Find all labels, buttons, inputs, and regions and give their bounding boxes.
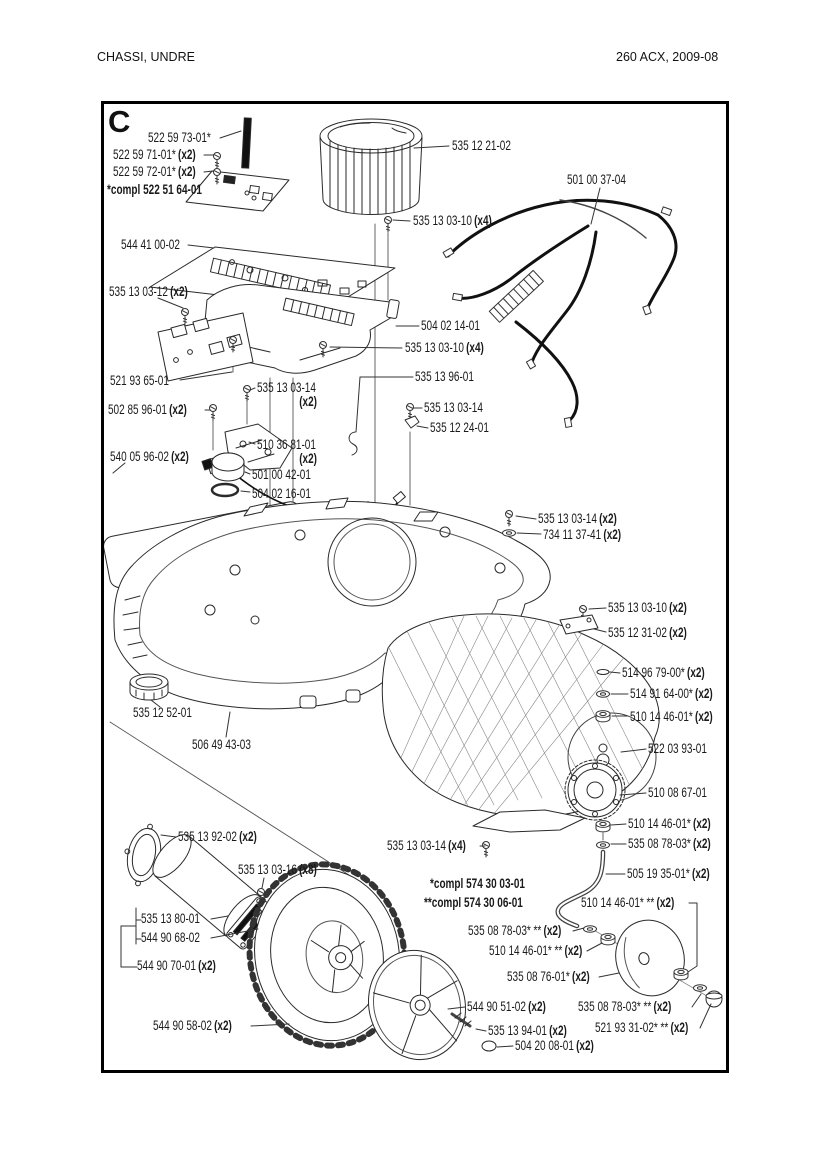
part-callout: 535 13 03-14 [424,401,485,415]
part-callout: 535 08 76-01*(x2) [507,970,590,984]
cable-harness-drawing [443,200,676,427]
part-callout: 501 00 37-04 [567,173,628,187]
part-callout: (x2) [297,452,317,466]
part-callout: 510 14 46-01* **(x2) [489,944,582,958]
part-callout: 535 13 80-01 [141,912,202,926]
part-callout: 510 08 67-01 [648,786,709,800]
part-callout: 522 59 71-01*(x2) [113,148,196,162]
part-callout: 535 13 03-16(x8) [238,863,317,877]
part-callout: 505 19 35-01*(x2) [627,867,710,881]
part-callout: 544 41 00-02 [121,238,182,252]
part-callout: 535 13 96-01 [415,370,476,384]
wheel-motor-unit-drawing [565,760,625,820]
part-callout: 544 90 68-02 [141,931,202,945]
part-callout: 502 85 96-01(x2) [108,403,187,417]
part-callout: 535 13 03-10(x4) [413,214,492,228]
compl-note: *compl 522 51 64-01 [107,183,202,197]
compl-note: **compl 574 30 06-01 [424,896,523,910]
part-callout: 544 90 51-02(x2) [467,1000,546,1014]
caster-wheel-drawing [607,912,692,1003]
part-callout: 535 13 03-14 [257,381,318,395]
part-callout: 510 14 46-01* **(x2) [581,896,674,910]
part-callout: 535 13 03-14(x2) [538,512,617,526]
part-callout: 535 12 21-02 [452,139,513,153]
part-callout: 504 02 14-01 [421,319,482,333]
part-callout: 734 11 37-41(x2) [543,528,621,542]
caster-axle-drawing [558,852,603,926]
model-revision: 260 ACX, 2009-08 [616,50,718,64]
parts-catalog-page: { "colors": {"ink": "#1a1a1a", "backgrou… [0,0,826,1169]
part-callout: 535 13 03-12(x2) [109,285,188,299]
part-callout: 544 90 70-01(x2) [137,959,216,973]
page-title: CHASSI, UNDRE [97,50,195,64]
part-callout: 535 08 78-03* **(x2) [578,1000,671,1014]
part-callout: 540 05 96-02(x2) [110,450,189,464]
part-callout: 535 12 52-01 [133,706,194,720]
part-callout: 535 13 03-10(x4) [405,341,484,355]
part-callout: 514 91 64-00*(x2) [630,687,713,701]
sensor-pcb-drawing [158,313,253,381]
part-callout: 522 59 73-01* [148,131,213,145]
compl-note: *compl 574 30 03-01 [430,877,525,891]
part-callout: 535 13 03-10(x2) [608,601,687,615]
part-callout: 522 59 72-01*(x2) [113,165,196,179]
part-callout: 521 93 65-01 [110,374,171,388]
part-callout: 535 12 24-01 [430,421,491,435]
part-callout: (x2) [297,395,317,409]
part-callout: 522 03 93-01 [648,742,709,756]
part-callout: 544 90 58-02(x2) [153,1019,232,1033]
part-callout: 510 14 46-01*(x2) [628,817,711,831]
part-callout: 535 13 92-02(x2) [178,830,257,844]
part-callout: 514 96 79-00*(x2) [622,666,705,680]
part-callout: 510 36 81-01 [257,438,318,452]
part-callout: 535 08 78-03*(x2) [628,837,711,851]
part-callout: 510 14 46-01*(x2) [630,710,713,724]
part-callout: 501 00 42-01 [252,468,313,482]
part-callout: 535 13 94-01(x2) [488,1024,567,1038]
part-callout: 521 93 31-02* **(x2) [595,1021,688,1035]
part-callout: 506 49 43-03 [192,738,253,752]
part-callout: 535 12 31-02(x2) [608,626,687,640]
part-callout: 504 20 08-01(x2) [515,1039,594,1053]
part-callout: 535 08 78-03* **(x2) [468,924,561,938]
part-callout: 535 13 03-14(x4) [387,839,466,853]
fan-drum-drawing [320,119,422,214]
chassis-plug-drawing [130,674,168,700]
part-callout: 504 02 16-01 [252,487,313,501]
